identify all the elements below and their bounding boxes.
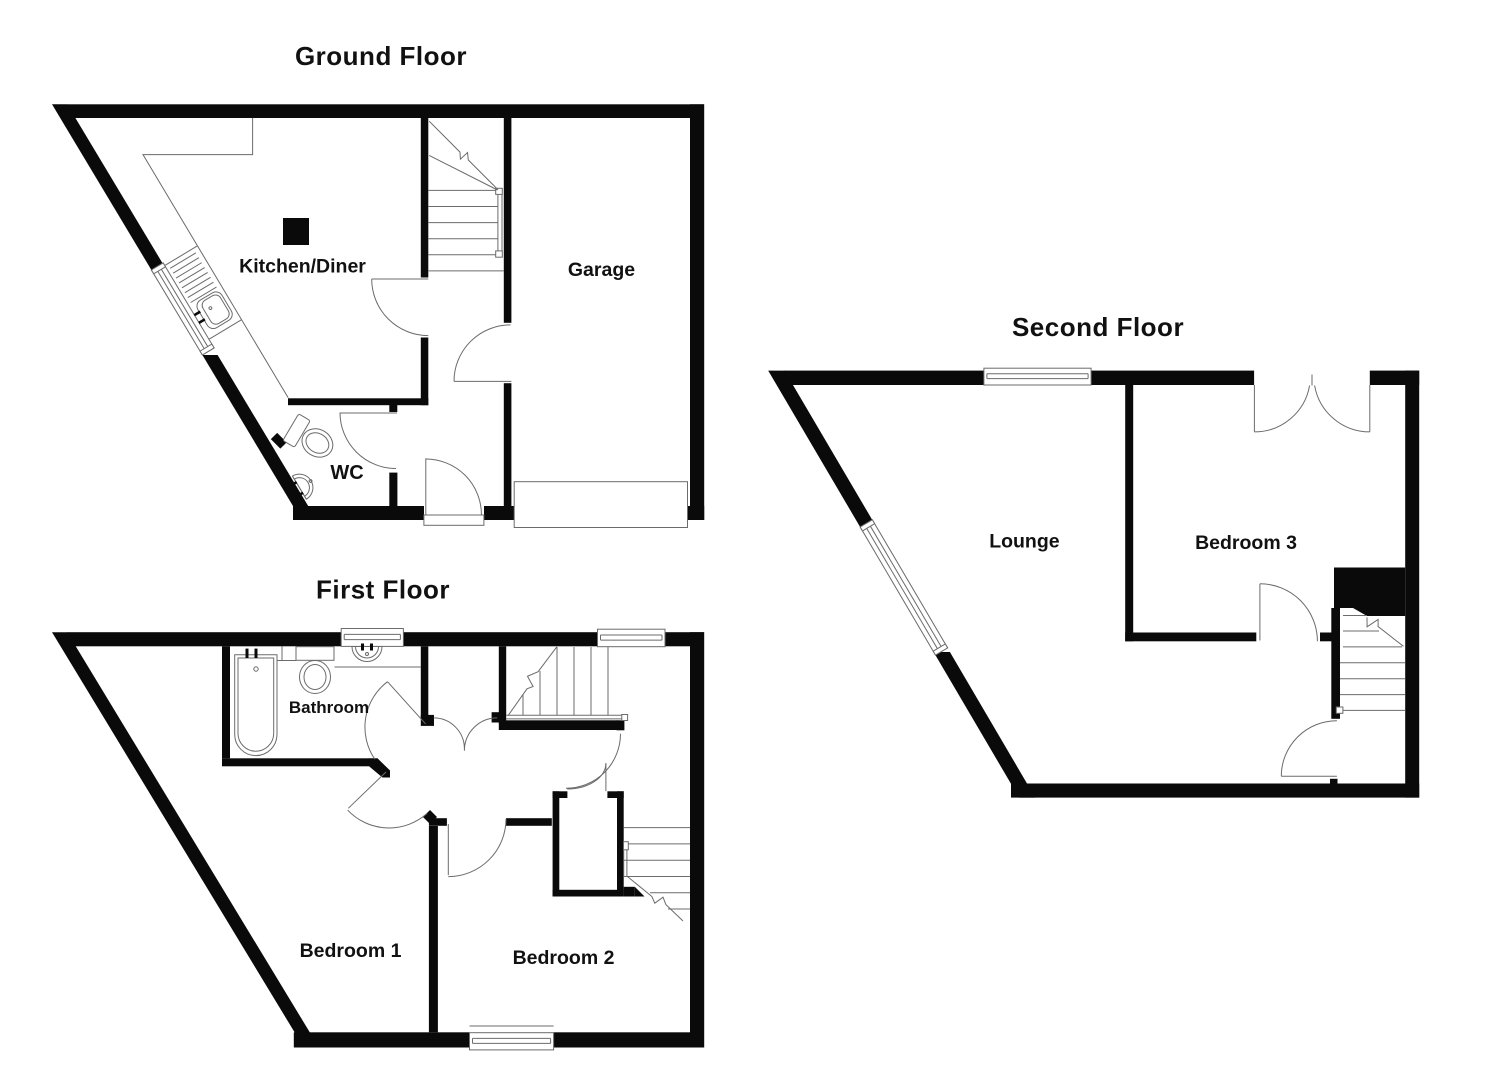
svg-text:Garage: Garage — [568, 259, 635, 281]
svg-text:Kitchen/Diner: Kitchen/Diner — [239, 255, 366, 277]
svg-text:Ground Floor: Ground Floor — [295, 41, 467, 71]
svg-text:Bedroom 2: Bedroom 2 — [513, 947, 615, 969]
svg-text:First Floor: First Floor — [316, 575, 450, 605]
svg-text:Bedroom 3: Bedroom 3 — [1195, 532, 1297, 554]
svg-text:Bathroom: Bathroom — [289, 698, 369, 717]
svg-text:WC: WC — [330, 462, 363, 484]
svg-text:Bedroom 1: Bedroom 1 — [300, 940, 402, 962]
svg-text:Second Floor: Second Floor — [1012, 312, 1184, 342]
svg-text:Lounge: Lounge — [989, 530, 1060, 552]
